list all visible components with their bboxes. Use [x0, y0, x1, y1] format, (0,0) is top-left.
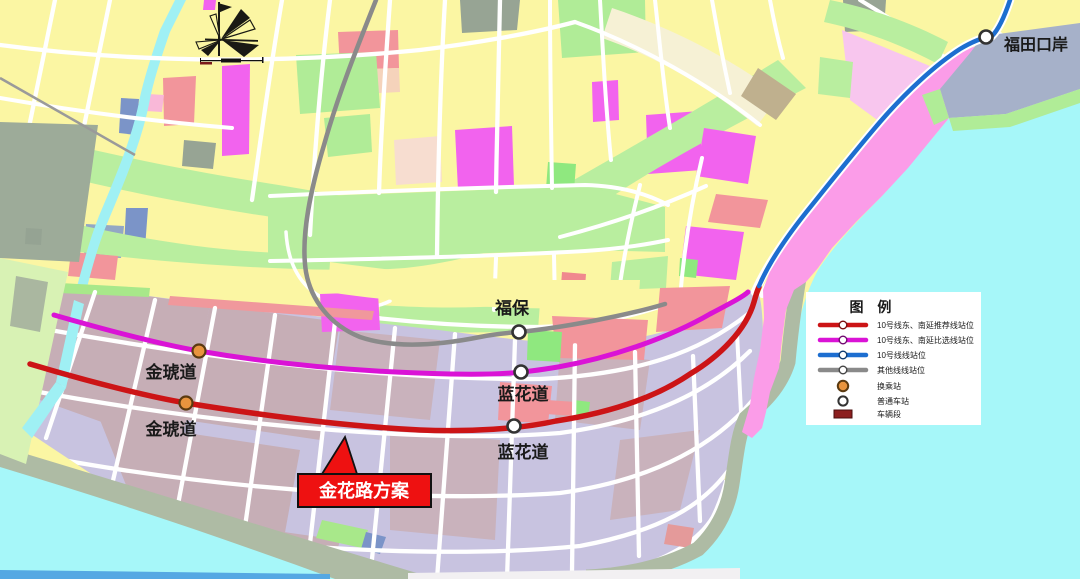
svg-text:金花路方案: 金花路方案: [318, 480, 410, 501]
svg-text:其他线线站位: 其他线线站位: [877, 365, 925, 375]
svg-text:蓝花道: 蓝花道: [498, 384, 549, 404]
svg-text:图 例: 图 例: [850, 299, 897, 315]
svg-text:10号线东、南延比选线站位: 10号线东、南延比选线站位: [877, 335, 974, 345]
svg-text:福保: 福保: [494, 298, 530, 318]
svg-text:金琥道: 金琥道: [145, 419, 197, 439]
svg-text:蓝花道: 蓝花道: [498, 442, 549, 462]
svg-text:10号线东、南延推荐线站位: 10号线东、南延推荐线站位: [877, 320, 974, 330]
svg-text:金琥道: 金琥道: [145, 362, 197, 382]
svg-text:车辆段: 车辆段: [877, 409, 901, 419]
svg-text:换乘站: 换乘站: [877, 381, 901, 391]
svg-text:10号线线站位: 10号线线站位: [877, 350, 926, 360]
svg-text:普通车站: 普通车站: [877, 396, 909, 406]
svg-text:福田口岸: 福田口岸: [1003, 35, 1068, 54]
